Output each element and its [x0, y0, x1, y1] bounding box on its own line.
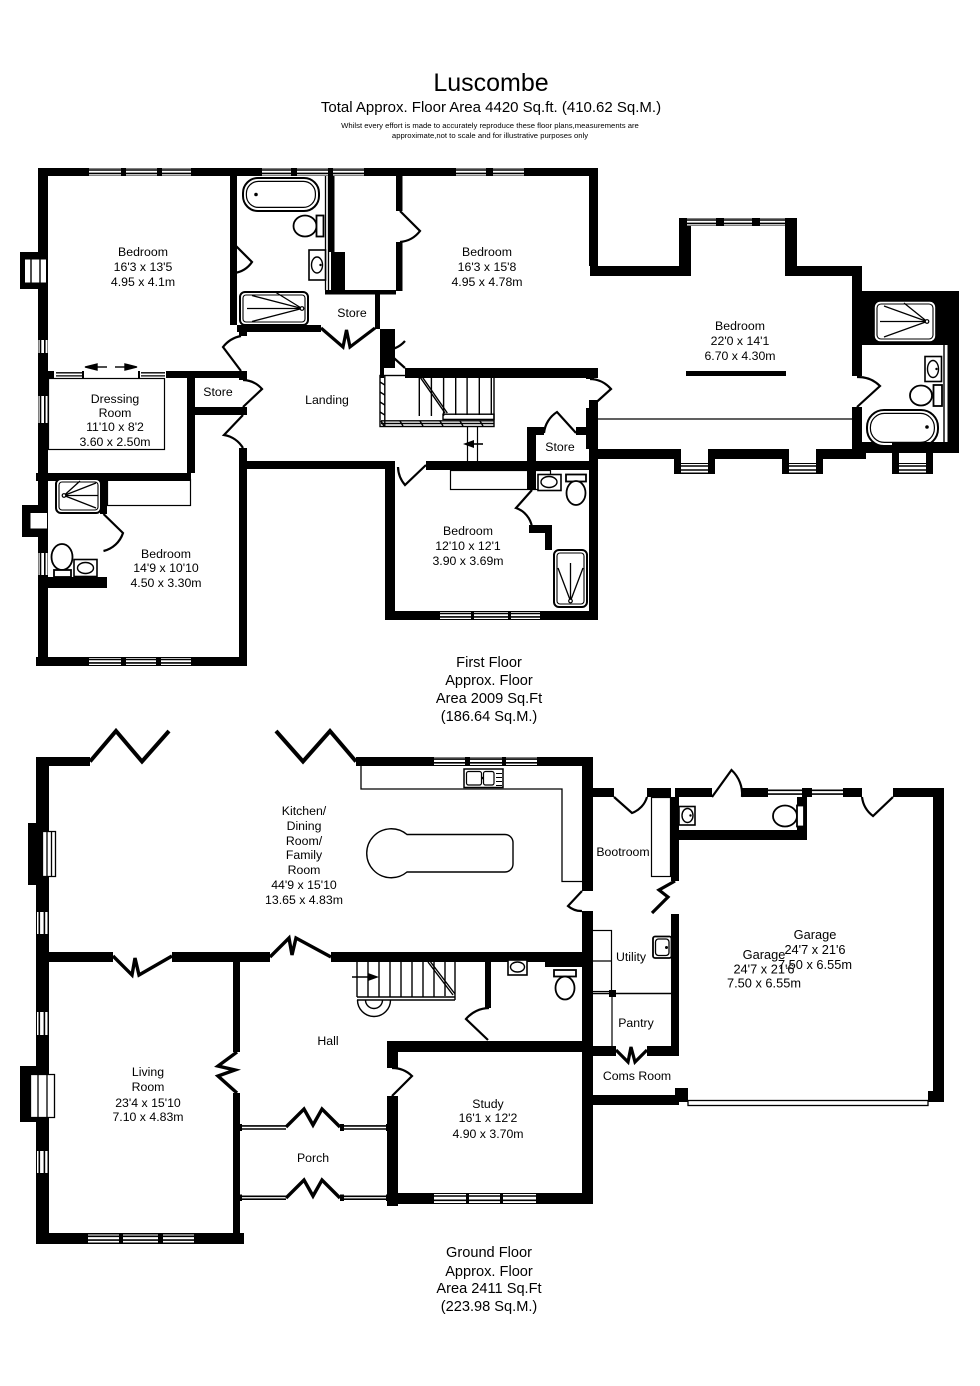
svg-text:Dressing: Dressing	[91, 392, 140, 406]
svg-text:4.90 x 3.70m: 4.90 x 3.70m	[452, 1127, 523, 1141]
svg-text:7.10 x 4.83m: 7.10 x 4.83m	[112, 1110, 183, 1124]
svg-text:4.95 x 4.78m: 4.95 x 4.78m	[451, 275, 522, 289]
svg-text:(223.98 Sq.M.): (223.98 Sq.M.)	[441, 1299, 538, 1315]
svg-text:3.90 x 3.69m: 3.90 x 3.69m	[432, 554, 503, 568]
svg-text:44'9 x 15'10: 44'9 x 15'10	[271, 878, 337, 892]
svg-text:First Floor: First Floor	[456, 655, 522, 671]
svg-text:4.95 x 4.1m: 4.95 x 4.1m	[111, 275, 175, 289]
svg-text:4.50 x 3.30m: 4.50 x 3.30m	[130, 576, 201, 590]
svg-text:22'0 x 14'1: 22'0 x 14'1	[711, 334, 770, 348]
svg-text:Ground Floor: Ground Floor	[446, 1245, 532, 1261]
svg-text:16'3 x 13'5: 16'3 x 13'5	[114, 260, 173, 274]
svg-text:(186.64 Sq.M.): (186.64 Sq.M.)	[441, 709, 538, 725]
svg-text:7.50 x 6.55m: 7.50 x 6.55m	[727, 976, 801, 991]
svg-text:16'1 x 12'2: 16'1 x 12'2	[459, 1111, 518, 1125]
svg-text:Total Approx. Floor Area 4420: Total Approx. Floor Area 4420 Sq.ft. (41…	[321, 99, 661, 116]
svg-text:Approx. Floor: Approx. Floor	[445, 673, 533, 689]
svg-text:Approx. Floor: Approx. Floor	[445, 1264, 533, 1280]
svg-text:12'10 x 12'1: 12'10 x 12'1	[435, 539, 501, 553]
svg-text:Bedroom: Bedroom	[118, 245, 168, 259]
svg-text:Porch: Porch	[297, 1151, 329, 1165]
svg-text:16'3 x 15'8: 16'3 x 15'8	[458, 260, 517, 274]
svg-text:Garage: Garage	[794, 927, 837, 942]
svg-text:Kitchen/: Kitchen/	[282, 804, 327, 818]
svg-text:13.65 x 4.83m: 13.65 x 4.83m	[265, 893, 343, 907]
svg-text:Store: Store	[337, 306, 367, 320]
svg-text:Room: Room	[99, 406, 132, 420]
svg-text:Area 2009 Sq.Ft: Area 2009 Sq.Ft	[436, 691, 542, 707]
svg-text:Room: Room	[132, 1080, 165, 1094]
svg-text:Bedroom: Bedroom	[443, 524, 493, 538]
svg-text:6.70 x 4.30m: 6.70 x 4.30m	[704, 349, 775, 363]
svg-text:Store: Store	[203, 385, 233, 399]
svg-text:24'7 x 21'6: 24'7 x 21'6	[784, 942, 845, 957]
svg-text:Study: Study	[472, 1097, 504, 1111]
svg-text:14'9 x 10'10: 14'9 x 10'10	[133, 561, 199, 575]
svg-text:Coms Room: Coms Room	[603, 1069, 671, 1083]
svg-text:Luscombe: Luscombe	[433, 69, 548, 97]
svg-text:Bedroom: Bedroom	[462, 245, 512, 259]
svg-text:Bootroom: Bootroom	[596, 845, 649, 859]
svg-text:Utility: Utility	[616, 950, 647, 964]
svg-text:Hall: Hall	[317, 1034, 338, 1048]
svg-text:Store: Store	[545, 440, 575, 454]
svg-text:Room/: Room/	[286, 834, 323, 848]
svg-text:Dining: Dining	[287, 819, 322, 833]
svg-text:3.60 x 2.50m: 3.60 x 2.50m	[79, 435, 150, 449]
svg-text:Room: Room	[288, 863, 321, 877]
svg-text:Bedroom: Bedroom	[141, 547, 191, 561]
svg-text:Landing: Landing	[305, 393, 349, 407]
svg-text:Whilst every effort is made to: Whilst every effort is made to accuratel…	[341, 121, 639, 130]
svg-text:23'4 x 15'10: 23'4 x 15'10	[115, 1096, 181, 1110]
svg-text:Garage: Garage	[743, 947, 786, 962]
svg-text:approximate,not to scale and f: approximate,not to scale and for illustr…	[392, 131, 588, 140]
svg-text:Area 2411 Sq.Ft: Area 2411 Sq.Ft	[436, 1281, 541, 1297]
svg-text:11'10 x 8'2: 11'10 x 8'2	[86, 420, 144, 434]
svg-text:Family: Family	[286, 848, 323, 862]
svg-text:Bedroom: Bedroom	[715, 319, 765, 333]
svg-text:Living: Living	[132, 1065, 164, 1079]
svg-text:Pantry: Pantry	[618, 1016, 654, 1030]
svg-text:24'7 x 21'6: 24'7 x 21'6	[733, 962, 794, 977]
